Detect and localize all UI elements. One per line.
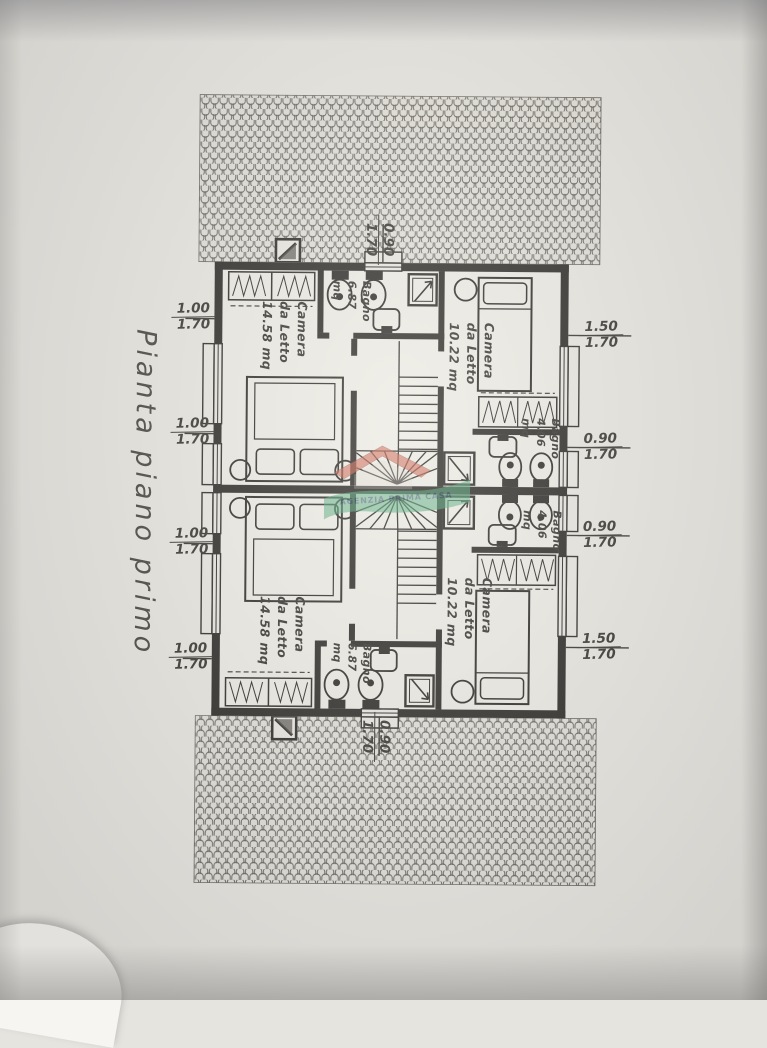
window-dimension-right-4: 1.501.70	[577, 631, 622, 663]
scanned-floor-plan-page: { "sheet": { "title": "Pianta piano prim…	[0, 0, 767, 1000]
room-label-bedroom-bottom-left: Camera da Letto 14.58 mq	[256, 596, 309, 665]
agency-watermark: AGENZIA PRIMA CASA	[324, 439, 471, 540]
room-label-bedroom-bottom-right: Camera da Letto 10.22 mq	[443, 577, 496, 646]
window-dimension-right-1: 1.501.70	[579, 319, 624, 351]
window-dimension-left-4: 1.001.70	[168, 641, 213, 673]
apartment-unit	[184, 94, 633, 487]
room-label-bathroom-right-upper: Bagno 4.06 mq	[517, 418, 562, 459]
roof-hatch-band	[199, 95, 601, 265]
window-dimension-left-3: 1.001.70	[169, 526, 214, 558]
page-title: Pianta piano primo	[128, 329, 162, 659]
drawing-sheet: Pianta piano primo Camera da Letto 14.58…	[0, 0, 767, 1003]
window-dimension-left-1: 1.001.70	[171, 301, 216, 333]
window-dimension-top: 0.901.70	[363, 215, 396, 265]
room-label-bathroom-top-center: Bagno 6.87 mq	[328, 281, 373, 322]
room-label-bedroom-top-right: Camera da Letto 10.22 mq	[445, 322, 498, 391]
agency-logo-house-icon	[324, 439, 471, 540]
window-dimension-right-3: 0.901.70	[577, 519, 622, 551]
room-label-bathroom-bottom-center: Bagno 6.87 mq	[329, 643, 374, 684]
room-label-bathroom-right-lower: Bagno 4.06 mq	[519, 510, 564, 551]
chimney-symbol	[276, 239, 300, 262]
window-dimension-left-2: 1.001.70	[170, 416, 215, 448]
window-dimension-bottom: 0.901.70	[359, 712, 392, 762]
room-label-bedroom-top-left: Camera da Letto 14.58 mq	[258, 301, 311, 370]
window-dimension-right-2: 0.901.70	[578, 431, 623, 463]
